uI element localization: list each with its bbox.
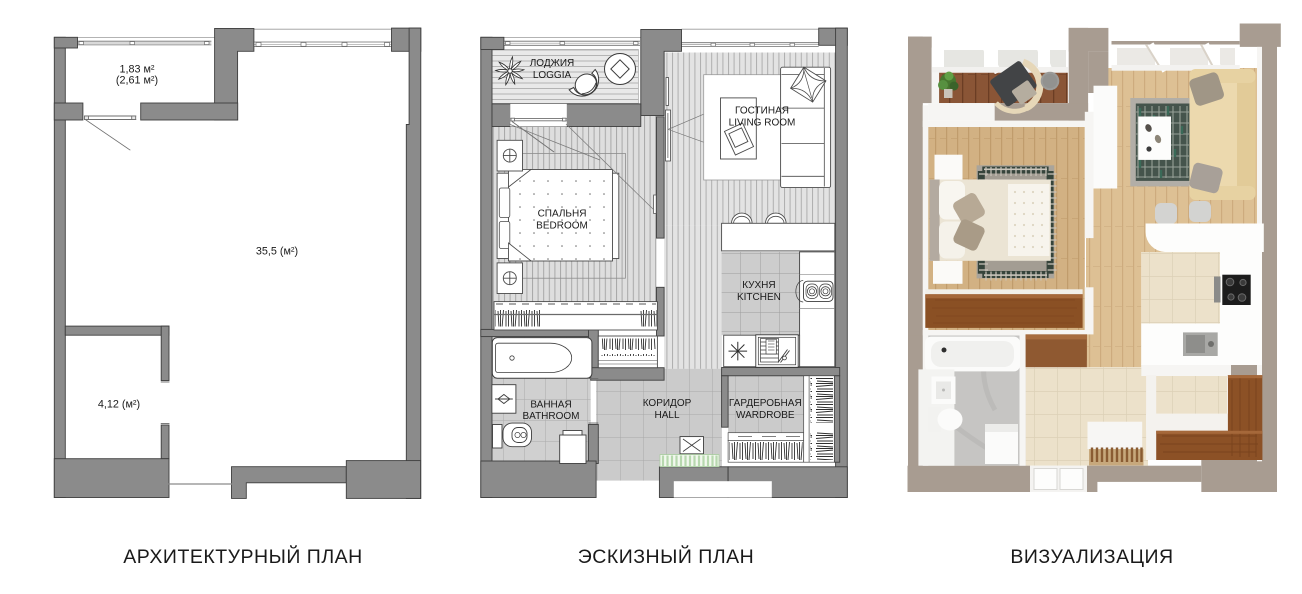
svg-text:ВИЗУАЛИЗАЦИЯ: ВИЗУАЛИЗАЦИЯ	[1010, 546, 1173, 568]
svg-text:ГАРДЕРОБНАЯ: ГАРДЕРОБНАЯ	[729, 398, 802, 409]
svg-text:35,5 (м²): 35,5 (м²)	[256, 246, 298, 258]
svg-text:ВАННАЯ: ВАННАЯ	[530, 400, 571, 411]
svg-text:ГОСТИНАЯ: ГОСТИНАЯ	[735, 106, 789, 117]
svg-text:LIVING ROOM: LIVING ROOM	[729, 118, 796, 129]
svg-text:КУХНЯ: КУХНЯ	[742, 280, 775, 291]
svg-text:АРХИТЕКТУРНЫЙ ПЛАН: АРХИТЕКТУРНЫЙ ПЛАН	[123, 544, 362, 568]
svg-text:4,12 (м²): 4,12 (м²)	[98, 399, 140, 411]
svg-text:BATHROOM: BATHROOM	[522, 411, 579, 422]
svg-text:WARDROBE: WARDROBE	[736, 410, 795, 421]
svg-text:KITCHEN: KITCHEN	[737, 292, 781, 303]
svg-text:HALL: HALL	[654, 410, 679, 421]
svg-text:(2,61 м²): (2,61 м²)	[116, 75, 158, 87]
svg-text:СПАЛЬНЯ: СПАЛЬНЯ	[538, 209, 587, 220]
svg-text:LOGGIA: LOGGIA	[533, 70, 572, 81]
svg-text:КОРИДОР: КОРИДОР	[643, 398, 692, 409]
svg-text:ЛОДЖИЯ: ЛОДЖИЯ	[530, 58, 575, 69]
svg-text:BEDROOM: BEDROOM	[536, 221, 588, 232]
svg-text:ЭСКИЗНЫЙ ПЛАН: ЭСКИЗНЫЙ ПЛАН	[578, 544, 754, 568]
